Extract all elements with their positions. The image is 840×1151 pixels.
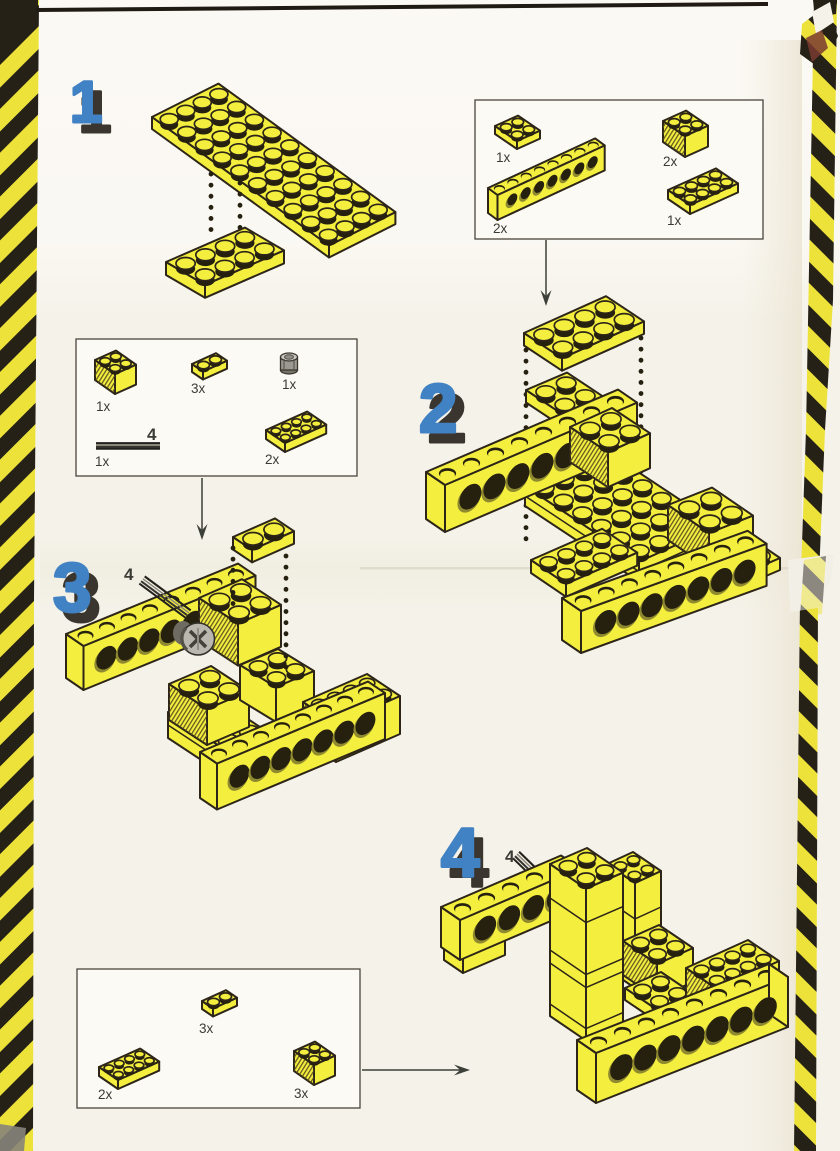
svg-text:3x: 3x bbox=[191, 381, 206, 396]
svg-text:4: 4 bbox=[441, 814, 479, 891]
svg-text:3: 3 bbox=[53, 549, 91, 626]
svg-text:4: 4 bbox=[147, 425, 157, 444]
svg-text:1x: 1x bbox=[96, 399, 111, 414]
svg-text:2x: 2x bbox=[493, 221, 508, 236]
svg-text:4: 4 bbox=[124, 565, 134, 584]
svg-text:4: 4 bbox=[505, 847, 515, 866]
svg-text:3x: 3x bbox=[199, 1021, 214, 1036]
svg-text:2: 2 bbox=[419, 370, 457, 447]
svg-text:3x: 3x bbox=[294, 1086, 309, 1101]
svg-text:1x: 1x bbox=[95, 454, 110, 469]
svg-text:1x: 1x bbox=[496, 150, 511, 165]
svg-text:2x: 2x bbox=[98, 1087, 113, 1102]
svg-text:1: 1 bbox=[70, 70, 102, 135]
svg-text:2x: 2x bbox=[663, 154, 678, 169]
svg-text:1x: 1x bbox=[282, 377, 297, 392]
svg-text:2x: 2x bbox=[265, 452, 280, 467]
svg-text:1x: 1x bbox=[667, 213, 682, 228]
